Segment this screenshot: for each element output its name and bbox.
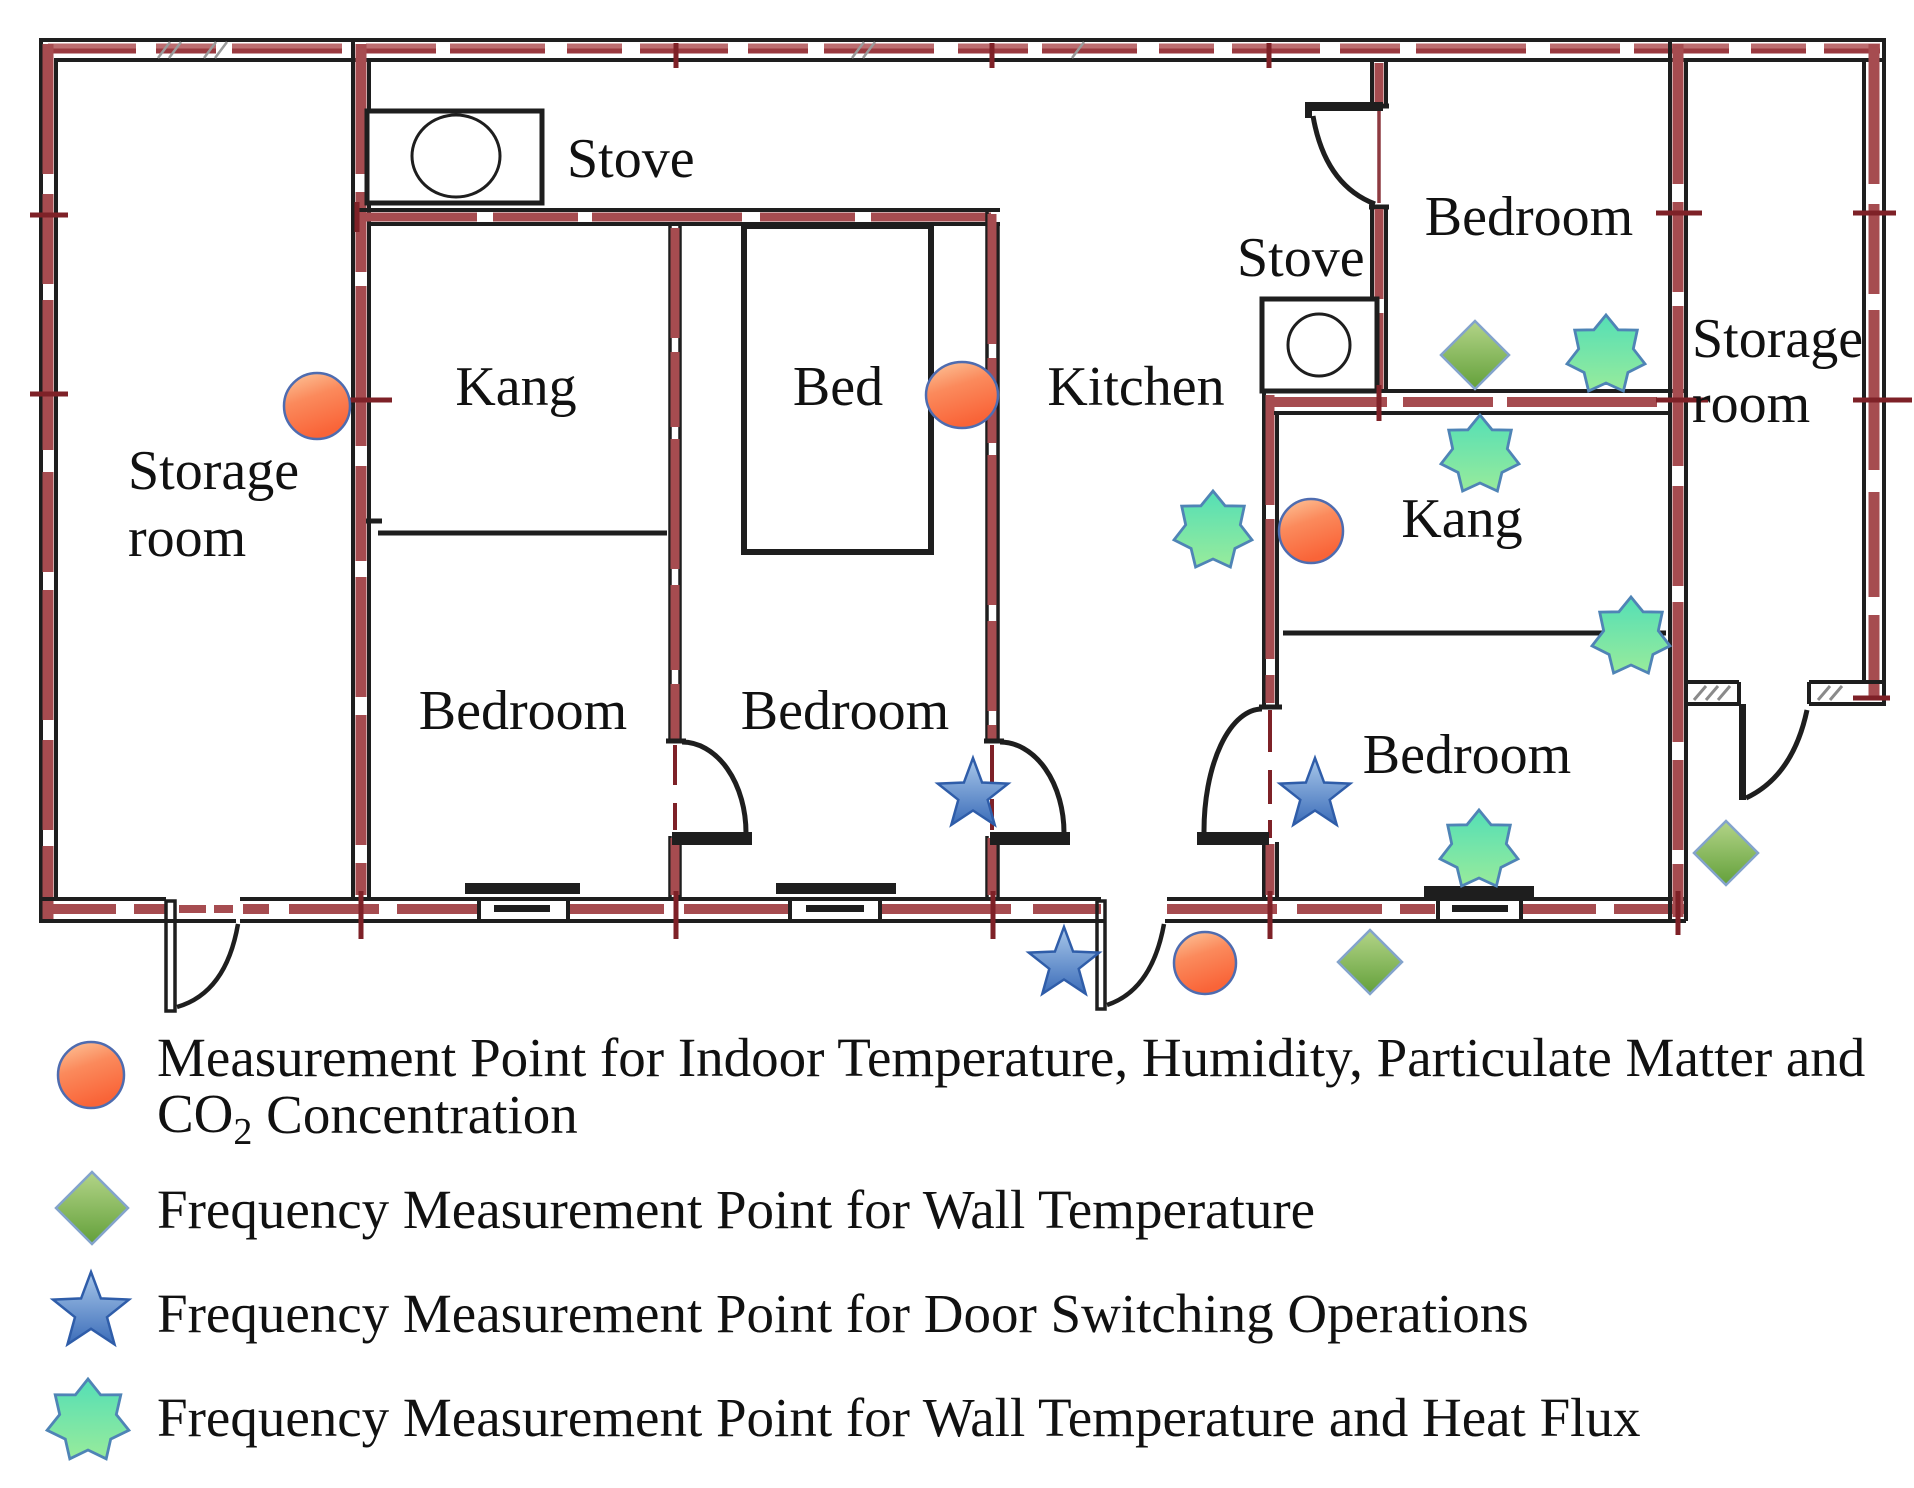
svg-text:Kang: Kang: [1401, 488, 1522, 550]
svg-text:room: room: [128, 507, 246, 569]
svg-text:CO2 Concentration: CO2 Concentration: [157, 1083, 578, 1153]
svg-text:Bedroom: Bedroom: [1425, 186, 1633, 248]
svg-text:Bedroom: Bedroom: [419, 680, 627, 742]
svg-text:Storage: Storage: [128, 440, 299, 502]
svg-text:room: room: [1692, 373, 1810, 435]
svg-text:Bedroom: Bedroom: [741, 680, 949, 742]
svg-text:Frequency Measurement Point fo: Frequency Measurement Point for Door Swi…: [157, 1283, 1529, 1344]
svg-text:Kang: Kang: [455, 356, 576, 418]
svg-text:Frequency Measurement Point fo: Frequency Measurement Point for Wall Tem…: [157, 1179, 1315, 1240]
svg-text:Kitchen: Kitchen: [1047, 356, 1224, 418]
svg-text:Measurement Point for Indoor T: Measurement Point for Indoor Temperature…: [157, 1027, 1865, 1088]
svg-text:Storage: Storage: [1692, 308, 1863, 370]
svg-text:Bedroom: Bedroom: [1363, 724, 1571, 786]
svg-text:Stove: Stove: [1237, 227, 1365, 289]
svg-text:Frequency Measurement Point fo: Frequency Measurement Point for Wall Tem…: [157, 1387, 1640, 1448]
svg-text:Bed: Bed: [793, 356, 883, 418]
svg-text:Stove: Stove: [567, 128, 695, 190]
